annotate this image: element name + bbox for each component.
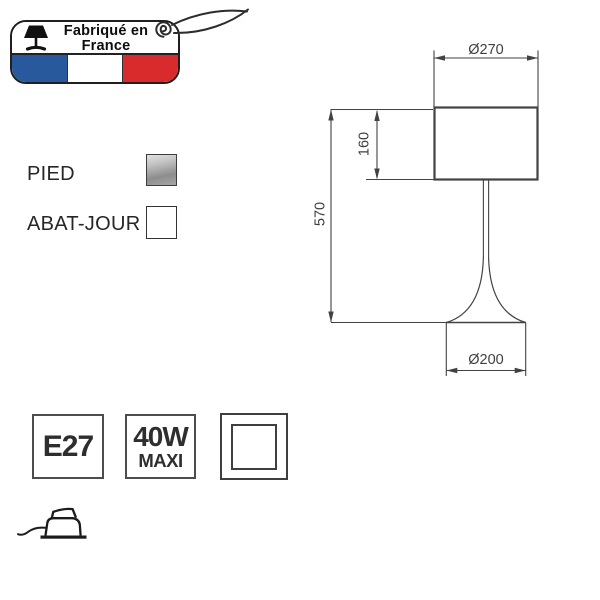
lamp-technical-drawing (328, 51, 538, 377)
shade-diameter-value: Ø270 (468, 42, 503, 58)
pied-color-swatch (146, 154, 177, 186)
flag-red-stripe (123, 55, 178, 82)
total-height-value: 570 (313, 202, 329, 226)
base-diameter-value: Ø200 (468, 352, 503, 368)
arrow-up-icon (328, 110, 333, 121)
arrow-left-icon (434, 55, 445, 60)
wattage-maxi-label: MAXI (138, 451, 182, 470)
made-in-france-badge: Fabriqué en France (10, 20, 180, 84)
badge-title-line2: France (48, 39, 164, 54)
wattage-value: 40W (133, 423, 188, 451)
arrow-down-icon (374, 169, 379, 180)
pied-label: PIED (27, 163, 75, 186)
table-lamp-icon (21, 25, 51, 52)
badge-title: Fabriqué en France (48, 24, 164, 54)
flag-blue-stripe (12, 55, 67, 82)
base-flare-left (447, 257, 484, 323)
class-ii-double-square-icon (231, 424, 277, 470)
abat-jour-label: ABAT-JOUR (27, 213, 140, 236)
badge-title-line1: Fabriqué en (48, 24, 164, 39)
french-flag (12, 53, 178, 82)
arrow-right-icon (515, 368, 526, 373)
iron-icon (15, 498, 125, 563)
max-wattage-spec-box: 40W MAXI (125, 414, 196, 479)
shade-height-value: 160 (357, 132, 373, 156)
lamp-shade-outline (435, 108, 538, 180)
base-flare-right (489, 257, 526, 323)
badge-top-section: Fabriqué en France (12, 22, 178, 53)
socket-spec-box: E27 (32, 414, 104, 479)
arrow-down-icon (328, 312, 333, 323)
class-ii-insulation-box (220, 413, 288, 480)
socket-value: E27 (43, 430, 93, 464)
flag-white-stripe (67, 55, 124, 82)
product-spec-sheet: { "badge": { "title_line1": "Fabriqué en… (0, 0, 600, 600)
arrow-left-icon (446, 368, 457, 373)
arrow-right-icon (527, 55, 538, 60)
arrow-up-icon (374, 110, 379, 121)
abat-jour-color-swatch (146, 206, 177, 239)
